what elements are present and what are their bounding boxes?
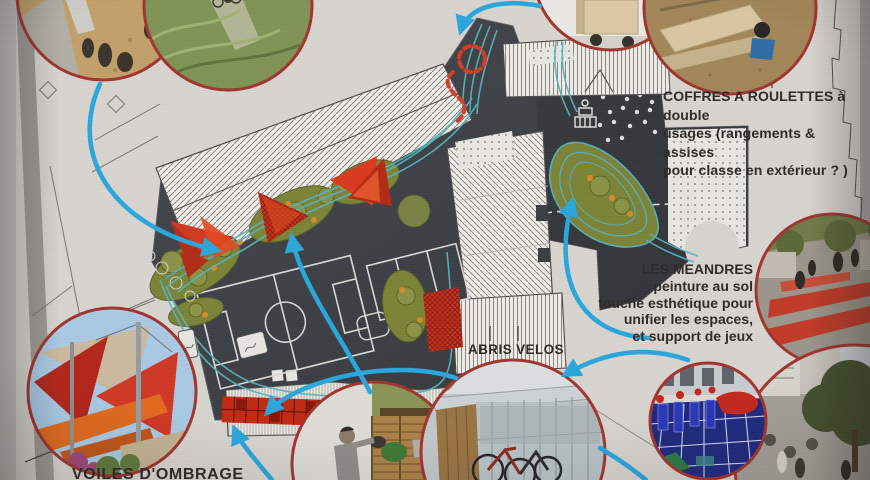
site-plan-drawing — [0, 0, 870, 480]
annotation-line: LES MEANDRES — [533, 261, 753, 278]
annotation-line: usages (rangements & assises — [663, 124, 868, 161]
annotation-line: COFFRES A ROULETTES à double — [663, 87, 868, 124]
annotation-meandres: LES MEANDRES peinture au sol touche esth… — [533, 261, 753, 345]
annotation-line: touche esthétique pour — [533, 295, 753, 312]
annotation-line: et support de jeux — [533, 328, 753, 345]
concept-plan-photo: COFFRES A ROULETTES à double usages (ran… — [0, 0, 870, 480]
annotation-line: unifier les espaces, — [533, 311, 753, 328]
annotation-voiles: VOILES D'OMBRAGE — [72, 466, 244, 480]
annotation-abris-velos: ABRIS VELOS — [468, 342, 564, 357]
annotation-line: peinture au sol — [533, 278, 753, 295]
photo-left-edge — [0, 0, 16, 480]
annotation-line: pour classe en extérieur ? ) — [663, 161, 868, 180]
annotation-coffres: COFFRES A ROULETTES à double usages (ran… — [663, 87, 868, 180]
